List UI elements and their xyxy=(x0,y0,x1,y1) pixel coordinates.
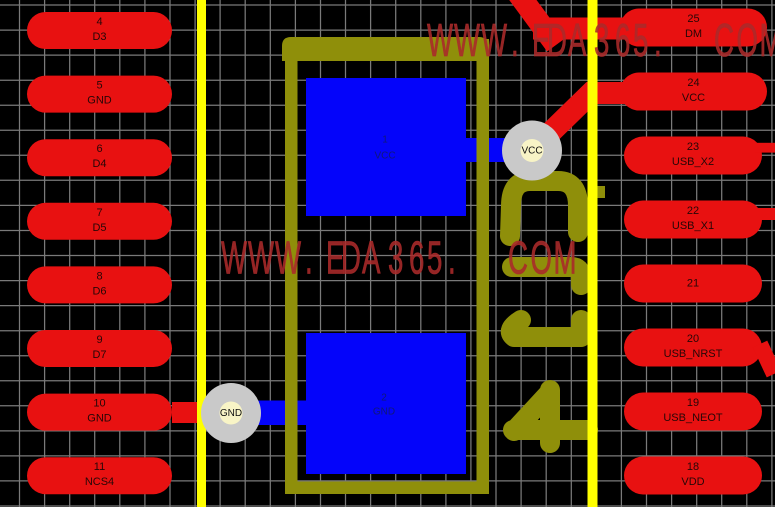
svg-text:1: 1 xyxy=(382,135,388,146)
svg-text:D6: D6 xyxy=(92,285,106,297)
svg-text:23: 23 xyxy=(687,141,699,153)
svg-text:GND: GND xyxy=(87,413,112,425)
svg-text:5: 5 xyxy=(96,80,102,92)
svg-text:GND: GND xyxy=(87,95,112,107)
svg-text:11: 11 xyxy=(94,461,105,473)
svg-text:VCC: VCC xyxy=(521,146,542,157)
svg-text:NCS4: NCS4 xyxy=(85,476,114,488)
svg-text:DM: DM xyxy=(685,28,702,40)
svg-text:21: 21 xyxy=(687,278,699,290)
svg-text:GND: GND xyxy=(220,408,242,419)
svg-text:10: 10 xyxy=(93,398,105,410)
svg-text:GND: GND xyxy=(373,407,395,418)
svg-text:4: 4 xyxy=(96,16,102,28)
svg-text:19: 19 xyxy=(687,397,699,409)
svg-text:8: 8 xyxy=(96,270,102,282)
svg-text:VCC: VCC xyxy=(682,92,705,104)
svg-text:USB_X2: USB_X2 xyxy=(672,156,714,168)
svg-text:USB_NEOT: USB_NEOT xyxy=(663,412,723,424)
svg-text:9: 9 xyxy=(96,334,102,346)
svg-text:20: 20 xyxy=(687,333,699,345)
svg-text:USB_NRST: USB_NRST xyxy=(664,348,723,360)
svg-text:D4: D4 xyxy=(92,158,106,170)
svg-text:7: 7 xyxy=(96,207,102,219)
svg-text:22: 22 xyxy=(687,205,699,217)
svg-text:VDD: VDD xyxy=(681,476,704,488)
svg-text:D5: D5 xyxy=(92,222,106,234)
svg-text:USB_X1: USB_X1 xyxy=(672,220,714,232)
svg-text:WWW.EDA365.COM: WWW.EDA365.COM xyxy=(427,16,775,67)
svg-text:D3: D3 xyxy=(92,31,106,43)
svg-text:2: 2 xyxy=(381,393,387,404)
svg-text:6: 6 xyxy=(96,143,102,155)
svg-text:VCC: VCC xyxy=(374,151,395,162)
svg-text:25: 25 xyxy=(687,13,699,25)
svg-text:24: 24 xyxy=(687,77,699,89)
svg-text:D7: D7 xyxy=(92,349,106,361)
svg-text:18: 18 xyxy=(687,461,699,473)
